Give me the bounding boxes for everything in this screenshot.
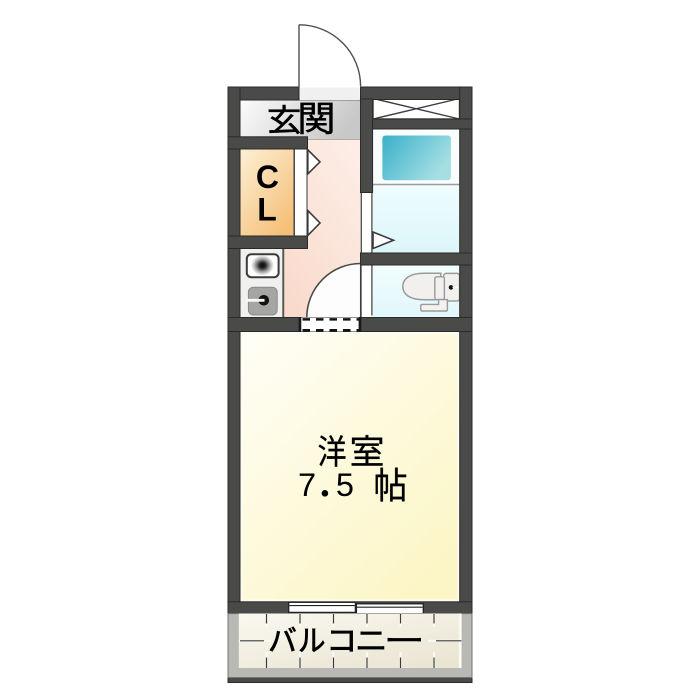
svg-text:L: L — [257, 191, 277, 227]
svg-text:7: 7 — [298, 467, 316, 503]
svg-text:5: 5 — [336, 467, 354, 503]
svg-text:C: C — [256, 159, 279, 195]
